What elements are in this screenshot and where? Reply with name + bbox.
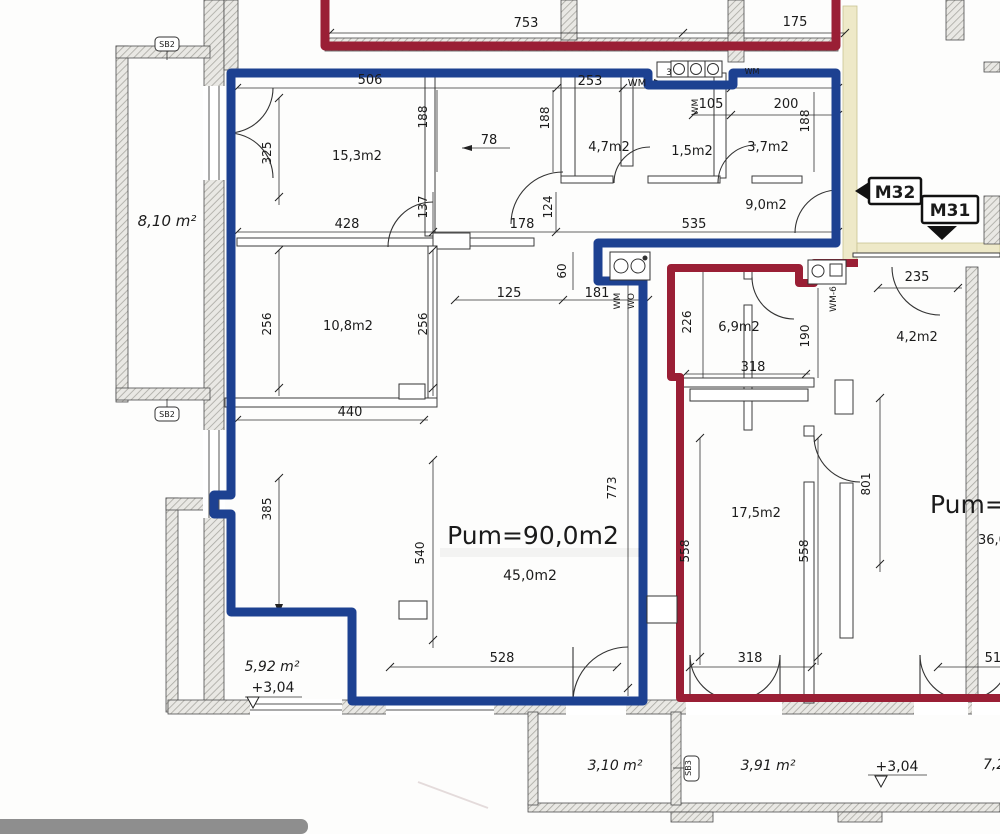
tag-sb3: SB3 — [684, 760, 693, 776]
room-1-5: 1,5m2 — [671, 144, 713, 159]
dim-124: 124 — [541, 196, 555, 219]
dim-256-a: 256 — [260, 313, 274, 336]
built-in-cabinet — [690, 389, 808, 401]
tag-m32-label: M32 — [875, 183, 916, 203]
floor-plan-canvas: 753175506253WM1052001881881887832515,3m2… — [0, 0, 1000, 834]
dim-256-b: 256 — [416, 313, 430, 336]
dim-558-a: 558 — [678, 540, 692, 563]
dim-318-a: 318 — [741, 360, 766, 375]
dim-235: 235 — [905, 270, 930, 285]
dim-125: 125 — [497, 286, 522, 301]
dim-105: 105 — [699, 97, 724, 112]
dim-510: 510 — [985, 651, 1000, 666]
room-15-3: 15,3m2 — [332, 149, 382, 164]
dim-753: 753 — [514, 16, 539, 31]
label-wm-arrow: WM — [628, 78, 647, 89]
room-6-9: 6,9m2 — [718, 320, 760, 335]
washbasin-icon — [708, 64, 719, 75]
room-10-8: 10,8m2 — [323, 319, 373, 334]
dim-78: 78 — [481, 133, 498, 148]
dim-440: 440 — [338, 405, 363, 420]
label-wm6: WM-6 — [829, 286, 839, 312]
room-36-0: 36,0 — [978, 533, 1000, 548]
dim-175: 175 — [783, 15, 808, 30]
level-mark-1: +3,04 — [252, 680, 295, 696]
dim-60: 60 — [555, 263, 569, 278]
dim-200: 200 — [774, 97, 799, 112]
dim-181: 181 — [585, 286, 610, 301]
dim-188-c: 188 — [798, 110, 812, 133]
dim-226: 226 — [680, 311, 694, 334]
dim-188-a: 188 — [416, 106, 430, 129]
party-wall-door-gap — [647, 596, 677, 623]
dim-188-b: 188 — [538, 107, 552, 130]
label-wm-vert: WM — [691, 99, 701, 116]
dim-385: 385 — [260, 498, 274, 521]
label-wm-niche: WM — [745, 67, 760, 76]
dim-178: 178 — [510, 217, 535, 232]
dim-137: 137 — [416, 196, 430, 219]
tag-sb2-bottom: SB2 — [159, 410, 175, 419]
dim-318-b: 318 — [738, 651, 763, 666]
tag-sb2-top: SB2 — [159, 40, 175, 49]
radiator — [399, 384, 425, 399]
room-17-5: 17,5m2 — [731, 506, 781, 521]
room-9-0: 9,0m2 — [745, 198, 787, 213]
label-wo-kitchen: WO — [627, 293, 637, 309]
dim-325: 325 — [260, 142, 274, 165]
dim-801: 801 — [859, 473, 873, 496]
floor-plan-scan: 753175506253WM1052001881881887832515,3m2… — [0, 0, 1000, 834]
room-8-10: 8,10 m² — [138, 212, 197, 230]
washbasin-icon — [674, 64, 685, 75]
label-niche-3: 3 — [666, 68, 672, 78]
dim-773: 773 — [605, 477, 619, 500]
tag-m31-label: M31 — [930, 201, 971, 221]
scan-edge-bar — [0, 819, 308, 834]
dim-558-b: 558 — [797, 540, 811, 563]
room-5-92: 5,92 m² — [245, 659, 300, 675]
dim-535: 535 — [682, 217, 707, 232]
dim-190: 190 — [798, 325, 812, 348]
room-pum6: Pum=6 — [930, 490, 1000, 519]
dim-540: 540 — [413, 542, 427, 565]
level-mark-2: +3,04 — [876, 759, 919, 775]
label-wm-kitchen: WM — [613, 293, 623, 310]
dim-253: 253 — [578, 74, 603, 89]
room-4-2: 4,2m2 — [896, 330, 938, 345]
room-4-7: 4,7m2 — [588, 140, 630, 155]
room-7-2: 7,2 — [983, 757, 1000, 773]
room-3-10: 3,10 m² — [588, 758, 643, 774]
dim-428: 428 — [335, 217, 360, 232]
room-3-91: 3,91 m² — [741, 758, 796, 774]
room-pum90: Pum=90,0m2 — [447, 521, 619, 550]
radiator — [399, 601, 427, 619]
room-45-0: 45,0m2 — [503, 568, 557, 584]
dim-528: 528 — [490, 651, 515, 666]
room-3-7: 3,7m2 — [747, 140, 789, 155]
dim-506: 506 — [358, 73, 383, 88]
washbasin-icon — [691, 64, 702, 75]
